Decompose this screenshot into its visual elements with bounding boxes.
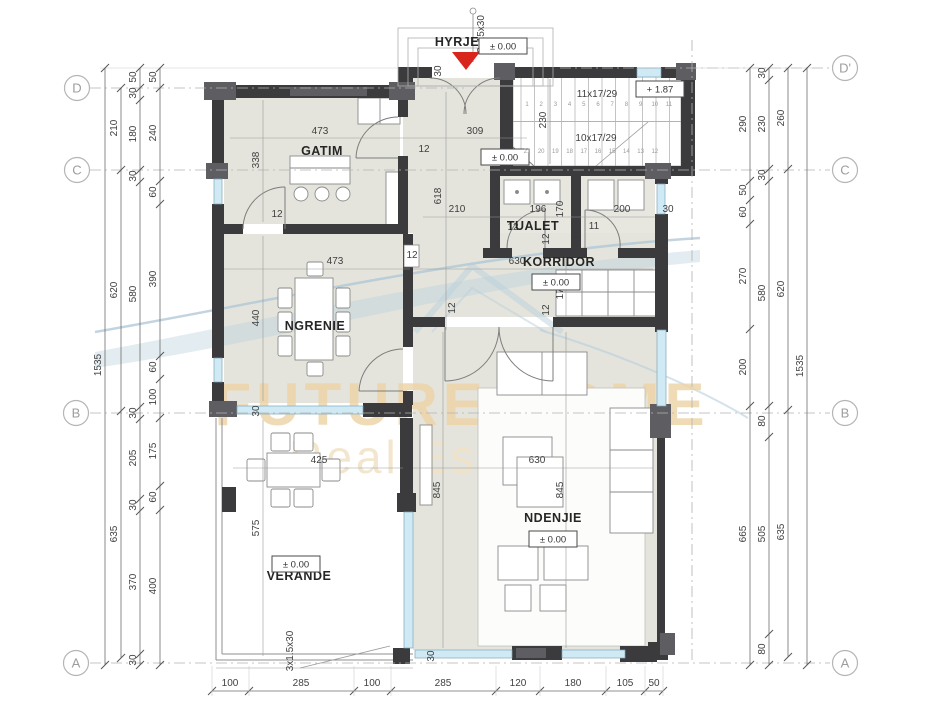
- dim-label: 100: [148, 388, 159, 405]
- dim-label: 80: [757, 643, 768, 655]
- plan-dim-label: 170: [555, 200, 566, 217]
- plan-dim-label: 210: [449, 204, 466, 215]
- plan-dim-label: 338: [251, 151, 262, 168]
- room-label-ndenjie: NDENJIE: [524, 511, 582, 525]
- plan-dim-label: 11: [589, 221, 600, 232]
- stair-step-number: 21: [524, 149, 531, 155]
- grid-bubble-letter: B: [841, 406, 850, 421]
- plan-dim-label: 11x17/29: [577, 89, 618, 100]
- dining-chair: [336, 288, 350, 308]
- kitchen-counter: [358, 98, 400, 124]
- room-label-ngrenie: NGRENIE: [285, 319, 345, 333]
- wall-veranda-divider-block: [397, 493, 416, 512]
- wall-right-mid: [655, 214, 668, 332]
- dim-label: 30: [128, 499, 139, 511]
- plan-dim-label: 30: [433, 65, 444, 77]
- dim-label: 60: [148, 186, 159, 198]
- stair-step-number: 17: [580, 149, 587, 155]
- armchair: [498, 546, 538, 580]
- dim-label: 400: [148, 577, 159, 594]
- dim-label: 30: [757, 67, 768, 79]
- wall-kitchen-hall-b: [398, 156, 408, 226]
- dim-label: 60: [148, 361, 159, 373]
- dim-label: 180: [565, 678, 582, 689]
- dim-label: 270: [738, 267, 749, 284]
- wall-bottom-right: [620, 646, 657, 662]
- wall-corner-bl-living: [393, 648, 410, 664]
- plan-dim-label: 12: [271, 209, 283, 220]
- column-block: [650, 404, 671, 438]
- wall-korridor-bottom-a: [413, 317, 445, 327]
- dim-label: 665: [738, 525, 749, 542]
- plan-dim-label: 309: [467, 126, 484, 137]
- wall-stair-top: [498, 67, 637, 78]
- plan-dim-label: 473: [327, 256, 344, 267]
- window-left-upper: [214, 179, 222, 204]
- plan-dim-label: 630: [529, 455, 546, 466]
- room-label-hyrje: HYRJE: [435, 35, 479, 49]
- dim-label: 30: [128, 654, 139, 666]
- stair-step-number: 12: [651, 149, 658, 155]
- veranda-chair: [294, 433, 313, 451]
- level-badge-value: + 1.87: [647, 85, 674, 96]
- wall-kitchen-hall-a: [398, 98, 408, 117]
- plan-dim-label: 30: [426, 650, 437, 662]
- dining-chair: [336, 336, 350, 356]
- plan-dim-label: 12: [541, 233, 552, 245]
- dim-label: 180: [128, 125, 139, 142]
- floor-plan-page: FUTURE HOME Real Estate: [0, 0, 950, 713]
- stair-step-number: 14: [623, 149, 630, 155]
- plan-dim-label: 30: [662, 204, 674, 215]
- dim-label: 50: [738, 184, 749, 196]
- dim-label: 100: [222, 678, 239, 689]
- bar-stool: [315, 187, 329, 201]
- stair-step-number: 20: [538, 149, 545, 155]
- dim-label: 50: [148, 71, 159, 83]
- wall-tualet-left: [490, 166, 500, 250]
- window-right-living: [657, 330, 666, 406]
- dim-label: 505: [757, 525, 768, 542]
- dim-label: 100: [364, 678, 381, 689]
- console-shelf: [420, 425, 432, 505]
- level-badge-value: ± 0.00: [492, 153, 518, 164]
- plan-dim-label: 575: [251, 519, 262, 536]
- veranda-steps-diagonal: [300, 646, 390, 668]
- window-left-lower: [214, 358, 222, 382]
- level-badge-value: ± 0.00: [490, 42, 516, 53]
- dim-label: 105: [617, 678, 634, 689]
- plan-dim-label: 3x1.5x30: [285, 630, 296, 671]
- wc-fixture: [588, 180, 614, 210]
- wall-korridor-bottom-b: [553, 317, 667, 327]
- plan-dim-label: 845: [432, 481, 443, 498]
- wall-left-lower: [212, 382, 224, 403]
- grid-bubble-letter: B: [72, 406, 81, 421]
- plan-dim-label: 200: [614, 204, 631, 215]
- dim-label: 200: [738, 358, 749, 375]
- stair-step-number: 11: [666, 102, 673, 108]
- dim-label: 290: [738, 115, 749, 132]
- wall-veranda-divider: [400, 418, 413, 498]
- level-badge-value: ± 0.00: [283, 560, 309, 571]
- dim-label: 30: [128, 87, 139, 99]
- veranda-chair: [271, 433, 290, 451]
- dim-label: 1535: [795, 354, 806, 377]
- entry-steps-marker-icon: [470, 8, 476, 14]
- column-block: [204, 82, 236, 100]
- column-block: [206, 163, 228, 179]
- plan-dim-label: 12: [418, 144, 430, 155]
- column-block: [494, 63, 515, 80]
- plan-dim-label: 12: [406, 250, 418, 261]
- wall-tualet-bottom-a: [483, 248, 512, 258]
- plan-dim-label: 618: [433, 187, 444, 204]
- dim-label: 240: [148, 124, 159, 141]
- wall-b-line: [363, 403, 412, 417]
- stair-step-number: 13: [637, 149, 644, 155]
- kitchen-tall-unit: [386, 172, 400, 226]
- window-bottom-b: [562, 650, 625, 658]
- side-table: [505, 585, 531, 611]
- bar-stool: [294, 187, 308, 201]
- faucet-icon: [546, 191, 549, 194]
- dim-label: 210: [109, 119, 120, 136]
- dim-label: 390: [148, 270, 159, 287]
- level-badge-value: ± 0.00: [543, 278, 569, 289]
- veranda-chair: [294, 489, 313, 507]
- veranda-column: [222, 487, 236, 512]
- plan-dim-label: 196: [530, 204, 547, 215]
- side-table: [540, 585, 566, 611]
- plan-dim-label: 12: [447, 302, 458, 314]
- faucet-icon: [516, 191, 519, 194]
- grid-bubble-letter: A: [841, 656, 850, 671]
- dining-chair: [278, 288, 292, 308]
- dim-label: 370: [128, 573, 139, 590]
- bar-stool: [336, 187, 350, 201]
- dim-label: 285: [293, 678, 310, 689]
- plan-dim-label: 473: [312, 126, 329, 137]
- tv-unit: [610, 408, 653, 533]
- dim-label: 620: [109, 281, 120, 298]
- plan-dim-label: 425: [311, 455, 328, 466]
- grid-bubble-letter: C: [72, 163, 81, 178]
- plan-dim-label: 230: [538, 111, 549, 128]
- dim-label: 60: [148, 491, 159, 503]
- dim-label: 30: [128, 170, 139, 182]
- dim-label: 120: [510, 678, 527, 689]
- veranda-chair: [247, 459, 265, 481]
- room-label-tualet: TUALET: [507, 219, 559, 233]
- plan-dim-label: 845: [555, 481, 566, 498]
- column-block: [676, 63, 696, 80]
- plan-dim-label: 440: [251, 309, 262, 326]
- entrance-marker-icon: [452, 52, 480, 70]
- dim-label: 50: [128, 71, 139, 83]
- wall-tualet-bottom-c: [618, 248, 665, 258]
- window-stair-top: [637, 68, 661, 77]
- dim-label: 60: [738, 206, 749, 218]
- wall-tualet-divider: [571, 176, 581, 250]
- dim-label: 80: [757, 415, 768, 427]
- stair-step-number: 19: [552, 149, 559, 155]
- dim-label: 205: [128, 449, 139, 466]
- grid-bubble-letter: D: [72, 81, 81, 96]
- dim-label: 635: [109, 525, 120, 542]
- stair-step-number: 15: [609, 149, 616, 155]
- window-living-veranda: [404, 512, 413, 648]
- room-label-gatim: GATIM: [301, 144, 343, 158]
- column-block: [660, 633, 675, 655]
- dim-label: 230: [757, 115, 768, 132]
- dim-label: 580: [757, 284, 768, 301]
- veranda-chair: [271, 489, 290, 507]
- grid-bubble-letter: A: [72, 656, 81, 671]
- stair-step-number: 18: [566, 149, 573, 155]
- stair-step-number: 16: [595, 149, 602, 155]
- grid-bubble-letter: D': [839, 61, 851, 76]
- wall-entry-top: [413, 67, 432, 78]
- wall-right-lower: [657, 438, 665, 648]
- dim-label: 175: [148, 442, 159, 459]
- plan-dim-label: 30: [251, 405, 262, 417]
- kitchen-island: [290, 156, 350, 184]
- wall-kitchen-dining-b: [283, 224, 408, 234]
- column-block: [645, 163, 671, 179]
- plan-dim-label: 10x17/29: [575, 133, 617, 144]
- column-block: [389, 82, 415, 100]
- floor-plan-drawing: FUTURE HOME Real Estate: [0, 0, 950, 713]
- dim-label: 50: [648, 678, 660, 689]
- dim-label: 635: [776, 523, 787, 540]
- wall-kitchen-dining-a: [212, 224, 243, 234]
- dim-label: 1535: [93, 353, 104, 376]
- column-block: [209, 401, 237, 417]
- dining-chair: [278, 336, 292, 356]
- wall-dining-hall-b: [403, 391, 413, 405]
- stair-step-number: 10: [651, 102, 658, 108]
- plan-dim-label: 12: [541, 304, 552, 316]
- dim-label: 30: [757, 169, 768, 181]
- dim-label: 260: [776, 109, 787, 126]
- dim-label: 580: [128, 285, 139, 302]
- grid-bubble-letter: C: [840, 163, 849, 178]
- dim-label: 285: [435, 678, 452, 689]
- dining-chair: [307, 362, 323, 376]
- level-badge-value: ± 0.00: [540, 535, 566, 546]
- sliding-door-block: [516, 648, 546, 658]
- dim-label: 30: [128, 407, 139, 419]
- dim-label: 620: [776, 280, 787, 297]
- room-label-korridor: KORRIDOR: [523, 255, 595, 269]
